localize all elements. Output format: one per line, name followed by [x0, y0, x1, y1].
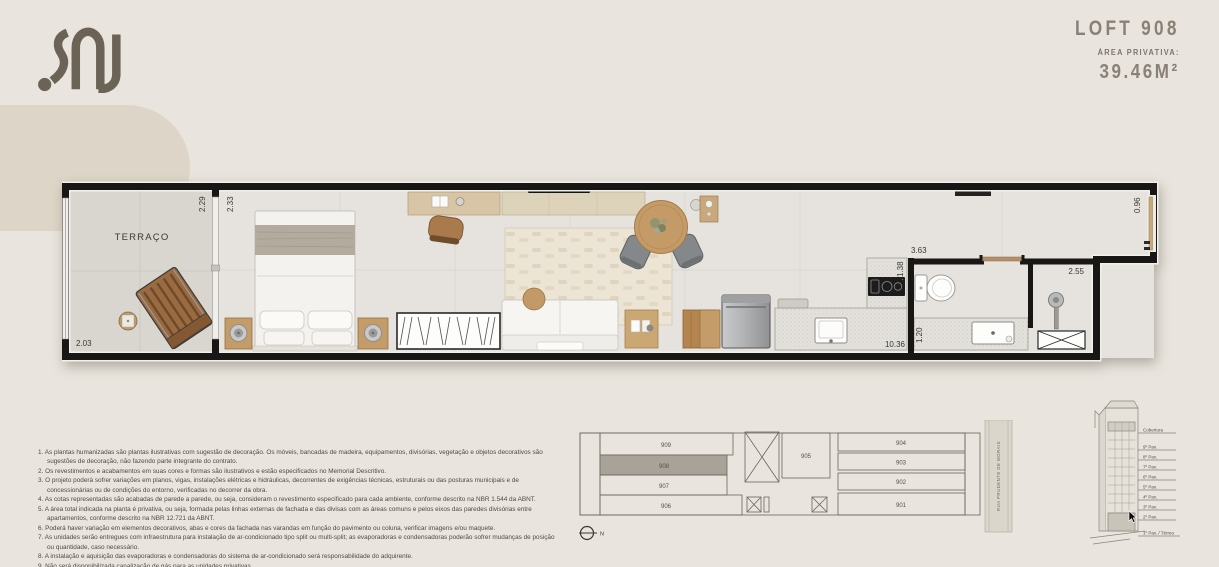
note-item: 3. O projeto poderá sofrer variações em … [38, 476, 560, 495]
elevator-shaft [745, 432, 779, 482]
svg-text:5º Pav.: 5º Pav. [1143, 485, 1157, 490]
note-item: 4. As cotas representadas são acabadas d… [38, 495, 560, 504]
dim-terrace-width: 2.03 [76, 339, 92, 348]
bath-counter [914, 318, 1028, 350]
toilet [915, 275, 955, 301]
svg-text:7º Pav.: 7º Pav. [1143, 465, 1157, 470]
svg-text:904: 904 [896, 441, 907, 447]
sal-logo [38, 27, 123, 93]
shaft-box [1038, 331, 1085, 349]
svg-text:909: 909 [661, 443, 672, 449]
building-elevation: Cobertura 9º Pav. 8º Pav. 7º Pav. 6º Pav… [1085, 398, 1217, 563]
page-title: LOFT 908 [1075, 17, 1180, 41]
svg-text:906: 906 [661, 504, 672, 510]
desk [408, 192, 500, 215]
key-plan: 909 908 907 906 905 904 903 902 901 RUA … [578, 420, 1018, 545]
svg-text:908: 908 [659, 464, 670, 470]
note-item: 5. A área total indicada na planta é pri… [38, 505, 560, 524]
note-item: 8. A instalação e aquisição das evaporad… [38, 552, 560, 561]
note-item: 1. As plantas humanizadas são plantas il… [38, 448, 560, 467]
svg-text:901: 901 [896, 503, 907, 509]
kitchen-cabinet [700, 310, 720, 348]
svg-text:3º Pav.: 3º Pav. [1143, 505, 1157, 510]
nightstand-right [358, 318, 388, 349]
dim-terrace-door: 2.29 [198, 196, 207, 212]
coffee-table [625, 310, 658, 348]
street-label: RUA PRUDENTE DE MORAIS [996, 441, 1001, 511]
dim-counter-depth: 1.38 [896, 261, 905, 277]
room-label-terraco: TERRAÇO [115, 232, 170, 243]
terrace-railing [63, 198, 69, 339]
dim-bath-width: 1.20 [915, 327, 924, 343]
dim-bath-length: 2.55 [1068, 267, 1084, 276]
header: LOFT 908 ÁREA PRIVATIVA: 39.46M² [1052, 17, 1180, 84]
cooktop [868, 277, 905, 296]
svg-text:902: 902 [896, 480, 907, 486]
dim-unit-length: 10.36 [885, 340, 906, 349]
sofa-side-table [523, 288, 545, 310]
logo-a [76, 32, 101, 90]
logo-dot [38, 78, 51, 91]
bed [253, 211, 357, 351]
svg-text:1º Pav. / Térreo: 1º Pav. / Térreo [1143, 531, 1174, 536]
logo-s [52, 33, 67, 81]
brochure-page: { "brand": {"logo_icon": "sal-logo"}, "h… [0, 0, 1219, 567]
floor-plan: TERRAÇO 2.03 2.29 2.33 3.63 1.38 10.36 1… [62, 181, 1160, 363]
note-item: 7. As unidades serão entregues com infra… [38, 533, 560, 552]
sofa [502, 300, 618, 350]
dim-bedroom-door: 2.33 [226, 196, 235, 212]
terrace-glass-door [212, 197, 220, 339]
terrace-side-table [119, 312, 137, 330]
note-item: 9. Não será disponibilizada canalização … [38, 562, 560, 567]
area-value: 39.46M² [1071, 61, 1180, 84]
kitchen-sink [815, 318, 847, 343]
svg-text:907: 907 [659, 484, 670, 490]
fridge [722, 295, 770, 348]
nightstand-left [225, 318, 252, 349]
north-label: N [600, 532, 604, 538]
svg-text:905: 905 [801, 454, 812, 460]
dim-hall-width: 0.96 [1133, 197, 1142, 213]
svg-text:6º Pav.: 6º Pav. [1143, 475, 1157, 480]
dim-kitchen-width: 3.63 [911, 246, 927, 255]
north-arrow: N [579, 527, 604, 540]
desk-chair [427, 215, 464, 245]
note-item: 2. Os revestimentos e acabamentos em sua… [38, 467, 560, 476]
legal-notes: 1. As plantas humanizadas são plantas il… [38, 448, 560, 567]
shaft-small-2 [812, 497, 827, 512]
svg-text:Cobertura: Cobertura [1143, 428, 1164, 433]
svg-text:9º Pav.: 9º Pav. [1143, 445, 1157, 450]
wall-shelf [700, 196, 718, 222]
svg-text:903: 903 [896, 461, 907, 467]
slatted-bench [397, 313, 500, 349]
area-label: ÁREA PRIVATIVA: [1063, 48, 1180, 57]
shaft-small-1 [747, 497, 761, 512]
svg-text:8º Pav.: 8º Pav. [1143, 455, 1157, 460]
note-item: 6. Poderá haver variação em elementos de… [38, 524, 560, 533]
street-strip: RUA PRUDENTE DE MORAIS [985, 420, 1012, 532]
sideboard [502, 192, 645, 215]
svg-text:2º Pav.: 2º Pav. [1143, 515, 1157, 520]
svg-text:4º Pav.: 4º Pav. [1143, 495, 1157, 500]
floor-labels: Cobertura 9º Pav. 8º Pav. 7º Pav. 6º Pav… [1138, 428, 1180, 537]
